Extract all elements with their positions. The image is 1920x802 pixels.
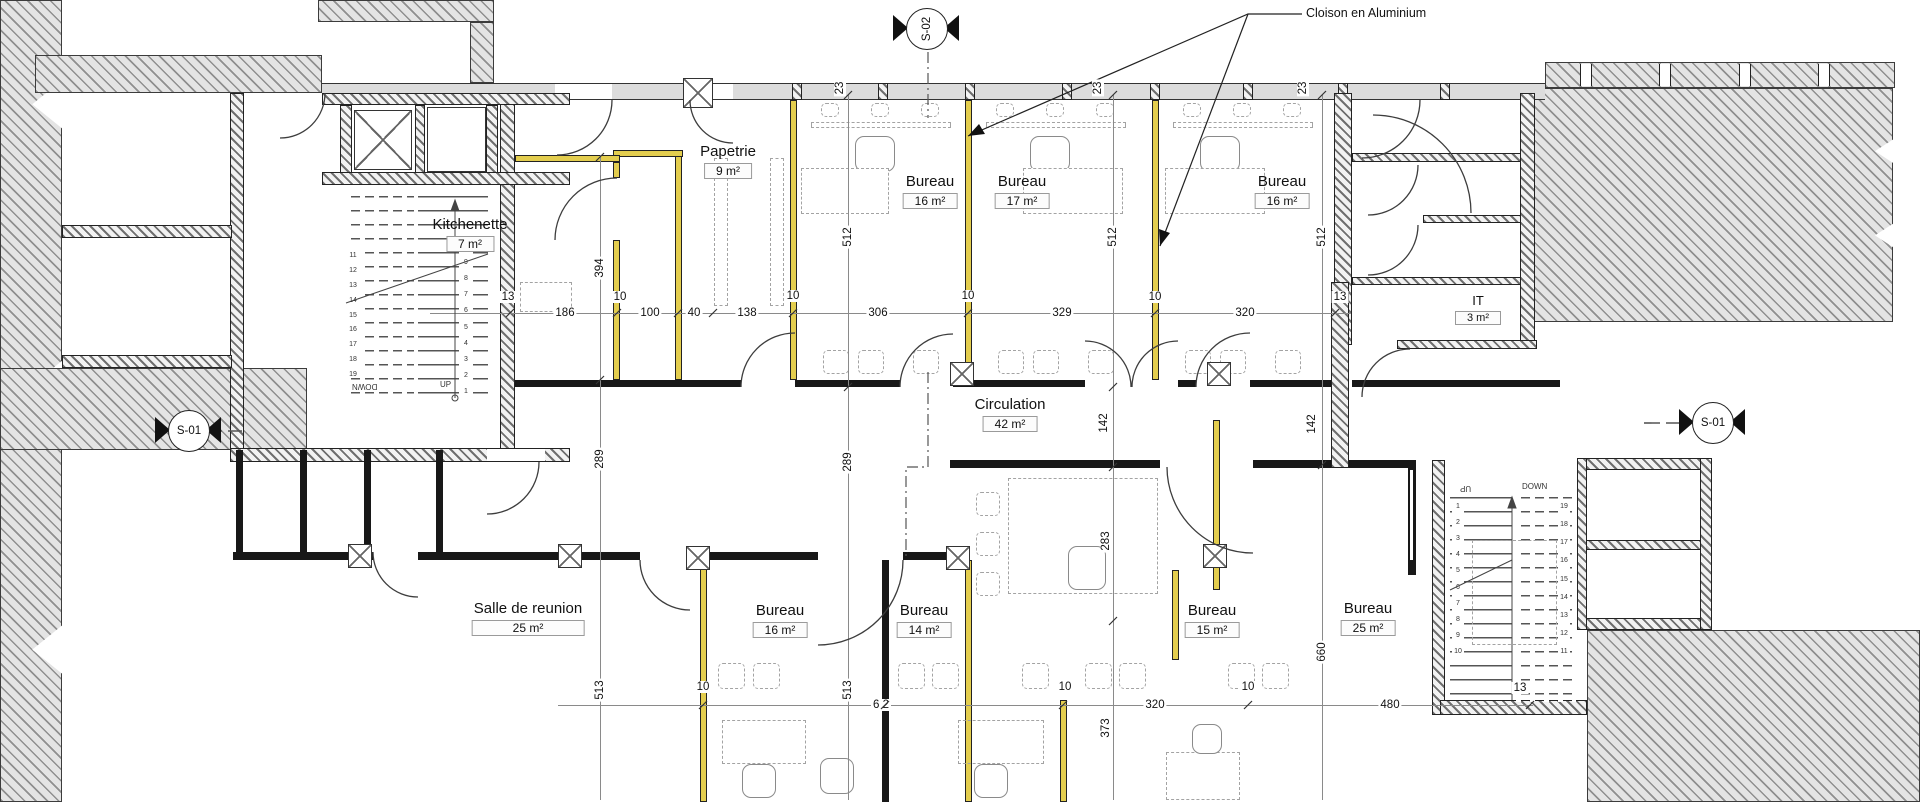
office-chair	[1068, 546, 1106, 590]
aluminium-partition	[965, 560, 972, 802]
corridor-top-wall	[1250, 380, 1332, 387]
dim-label-10: 10	[960, 290, 977, 302]
desk	[1173, 122, 1313, 128]
office-chair	[742, 764, 776, 798]
chair	[921, 103, 939, 117]
column	[792, 83, 802, 100]
chair	[998, 350, 1024, 374]
aluminium-partition	[965, 100, 972, 380]
stair-left-up-label: UP	[440, 380, 451, 389]
kitchenette-top-wall	[515, 155, 620, 162]
chair	[858, 350, 884, 374]
partition-wall	[882, 560, 889, 802]
aluminium-partition	[613, 150, 683, 157]
dim-label: 480	[1378, 699, 1401, 711]
window-tick	[1659, 64, 1671, 86]
core-door-opening	[487, 449, 545, 461]
dim-label-10: 10	[612, 291, 629, 303]
structural-column	[683, 78, 713, 108]
room-label-bureau-bottom-4: Bureau 25 m²	[1341, 600, 1396, 636]
structural-column	[558, 544, 582, 568]
window-tick	[1739, 64, 1751, 86]
dim-label-373: 373	[1100, 716, 1112, 739]
core-wall-left	[230, 93, 244, 462]
desk	[958, 720, 1044, 764]
stair-left-down-label: DOWN	[352, 382, 377, 391]
stair-left-tread-numbers-1: 10987654321	[459, 243, 473, 395]
stair-right-enclosure-left	[1432, 460, 1445, 715]
right-rooms-wall	[1700, 458, 1712, 630]
structural-column	[348, 544, 372, 568]
wc-block-right-wall	[1520, 93, 1535, 345]
desk	[1165, 168, 1265, 214]
exterior-hatch-topright-block	[1532, 88, 1893, 322]
column	[1150, 83, 1160, 100]
exterior-wall-topleft-vertical	[470, 22, 494, 83]
column	[1062, 83, 1072, 100]
exterior-hatch-bottomright-block	[1587, 630, 1920, 802]
dim-label-23: 23	[1092, 80, 1104, 97]
aluminium-partition	[1152, 100, 1159, 380]
structural-column	[950, 362, 974, 386]
stair-right-wall-slot	[1410, 470, 1413, 560]
dimension-line-vertical	[1113, 95, 1114, 800]
dim-label-289: 289	[842, 450, 854, 473]
chair	[932, 663, 959, 689]
exterior-wall-topleft	[35, 55, 322, 93]
dimension-line-vertical	[1322, 95, 1323, 800]
dim-label-394: 394	[594, 256, 606, 279]
cloison-annotation: Cloison en Aluminium	[1306, 6, 1426, 20]
desk	[1166, 752, 1240, 800]
dim-label: 186	[553, 307, 576, 319]
left-lower-room-wall	[236, 450, 243, 552]
elevator-shaft-2	[427, 107, 486, 172]
chair	[1262, 663, 1289, 689]
room-label-bureau-bottom-1: Bureau 16 m²	[753, 602, 808, 638]
corridor-top-wall-right	[1352, 380, 1560, 387]
left-lower-room-wall	[300, 450, 307, 552]
office-chair	[855, 136, 895, 172]
exterior-wall-topleft-upper	[318, 0, 494, 22]
room-label-papetrie: Papetrie 9 m²	[700, 143, 756, 179]
chair	[1088, 350, 1114, 374]
structural-column	[686, 546, 710, 570]
room-label-salle-de-reunion: Salle de reunion 25 m²	[472, 600, 585, 636]
dim-label-283: 283	[1100, 529, 1112, 552]
right-rooms-wall	[1577, 540, 1712, 550]
room-label-bureau-top-2: Bureau 17 m²	[995, 173, 1050, 209]
it-room-bottom-wall	[1397, 340, 1537, 349]
window-tick	[1580, 64, 1592, 86]
office-chair	[1192, 724, 1222, 754]
dim-label-512: 512	[842, 225, 854, 248]
room-label-bureau-top-1: Bureau 16 m²	[903, 173, 958, 209]
column	[965, 83, 975, 100]
corridor-bottom-wall-left	[418, 552, 640, 560]
aluminium-partition	[1060, 700, 1067, 802]
chair	[1119, 663, 1146, 689]
structural-column	[946, 546, 970, 570]
dim-label-10: 10	[1147, 291, 1164, 303]
chair	[996, 103, 1014, 117]
desk	[811, 122, 951, 128]
desk	[722, 720, 806, 764]
dim-label-513: 513	[594, 678, 606, 701]
room-label-bureau-bottom-2: Bureau 14 m²	[897, 602, 952, 638]
chair	[898, 663, 925, 689]
chair	[753, 663, 780, 689]
right-rooms-wall	[1577, 458, 1712, 470]
chair	[976, 572, 1000, 596]
shelving	[714, 158, 728, 306]
chair	[1085, 663, 1112, 689]
chair	[1022, 663, 1049, 689]
stair-right-enclosure-bottom	[1440, 700, 1587, 715]
corridor-top-wall	[1178, 380, 1196, 387]
dim-label: 320	[1143, 699, 1166, 711]
dim-label: 6 2	[871, 699, 891, 711]
chair	[913, 350, 939, 374]
corridor-top-wall	[515, 380, 741, 387]
chair	[1096, 103, 1114, 117]
room-label-circulation: Circulation 42 m²	[975, 396, 1046, 432]
chair	[1275, 350, 1301, 374]
stair-right-up-label: UP	[1460, 484, 1471, 493]
aluminium-partition	[790, 100, 797, 380]
room-label-bureau-bottom-3: Bureau 15 m²	[1185, 602, 1240, 638]
column	[878, 83, 888, 100]
dim-label-10: 10	[1240, 681, 1257, 693]
dim-label-142: 142	[1098, 411, 1110, 434]
wc-divider-wall	[1352, 153, 1523, 162]
dim-label: 138	[735, 307, 758, 319]
exterior-hatch-left-block	[0, 368, 307, 450]
dim-label: 40	[686, 307, 703, 319]
chair	[976, 492, 1000, 516]
dim-label-512: 512	[1107, 225, 1119, 248]
chair	[1233, 103, 1251, 117]
dim-label-512: 512	[1316, 225, 1328, 248]
column	[1243, 83, 1253, 100]
left-rooms-divider-wall	[62, 225, 232, 238]
section-marker-s02-label: S-02	[921, 17, 933, 41]
stair-right-down-label: DOWN	[1522, 482, 1547, 491]
dim-label-513: 513	[842, 678, 854, 701]
right-rooms-wall	[1577, 618, 1712, 630]
dim-label: 306	[866, 307, 889, 319]
stair-left-tread-numbers-2: 111213141516171819	[346, 252, 360, 378]
chair	[1183, 103, 1201, 117]
structural-column	[1203, 544, 1227, 568]
office-chair	[1200, 136, 1240, 172]
core-wall-right	[500, 93, 515, 462]
dim-label-10: 10	[695, 681, 712, 693]
chair	[1033, 350, 1059, 374]
dim-label-10: 10	[1057, 681, 1074, 693]
aluminium-partition	[1172, 570, 1179, 660]
chair	[1046, 103, 1064, 117]
section-marker-s01-right-label: S-01	[1701, 417, 1725, 429]
kitchenette-right-wall	[613, 162, 620, 178]
dim-label: 329	[1050, 307, 1073, 319]
dim-label-289: 289	[594, 447, 606, 470]
column	[1440, 83, 1450, 100]
desk	[801, 168, 889, 214]
structural-column	[1207, 362, 1231, 386]
stair-right-tread-numbers-1: 12345678910	[1452, 503, 1464, 655]
aluminium-partition	[675, 150, 682, 380]
stair-right-landing	[1472, 540, 1557, 645]
dim-label: 13	[500, 291, 517, 303]
dim-label-23: 23	[834, 80, 846, 97]
left-rooms-bottom-wall	[62, 355, 232, 368]
floor-plan-drawing: 10987654321 111213141516171819 UP DOWN 1	[0, 0, 1920, 802]
left-lower-room-wall	[364, 450, 371, 552]
window-tick	[1818, 64, 1830, 86]
room-label-it: IT 3 m²	[1455, 293, 1501, 325]
left-lower-room-wall	[436, 450, 443, 552]
dim-label: 100	[638, 307, 661, 319]
elevator-shaft	[354, 110, 412, 170]
corridor-bottom-wall-mid	[950, 460, 1160, 468]
chair	[871, 103, 889, 117]
elevator-wall-bottom	[322, 172, 570, 185]
dimension-line-vertical	[600, 155, 601, 800]
chair	[976, 532, 1000, 556]
office-chair	[974, 764, 1008, 798]
chair	[718, 663, 745, 689]
dim-label-23: 23	[1297, 80, 1309, 97]
desk	[986, 122, 1126, 128]
elevator-wall-top	[322, 93, 570, 105]
kitchenette-right-wall	[613, 240, 620, 380]
section-marker-s01-left-label: S-01	[177, 425, 201, 437]
right-wall-segment	[1331, 282, 1349, 468]
wc-divider-wall	[1423, 215, 1523, 223]
dim-label: 13	[1332, 291, 1349, 303]
room-label-bureau-top-3: Bureau 16 m²	[1255, 173, 1310, 209]
chair	[821, 103, 839, 117]
exterior-wall-topright-band	[1545, 62, 1895, 88]
dim-label: 13	[1512, 682, 1529, 694]
dim-label-660: 660	[1316, 640, 1328, 663]
dim-label: 320	[1233, 307, 1256, 319]
dim-label-142: 142	[1306, 412, 1318, 435]
chair	[1283, 103, 1301, 117]
office-chair	[1030, 136, 1070, 172]
room-label-kitchenette: Kitchenette 7 m²	[432, 216, 507, 252]
right-rooms-wall	[1577, 458, 1587, 630]
dim-label-10: 10	[785, 290, 802, 302]
shelving	[770, 158, 784, 306]
chair	[823, 350, 849, 374]
stair-right-tread-numbers-2: 191817161514131211	[1558, 503, 1570, 655]
wc-divider-wall	[1352, 277, 1523, 285]
